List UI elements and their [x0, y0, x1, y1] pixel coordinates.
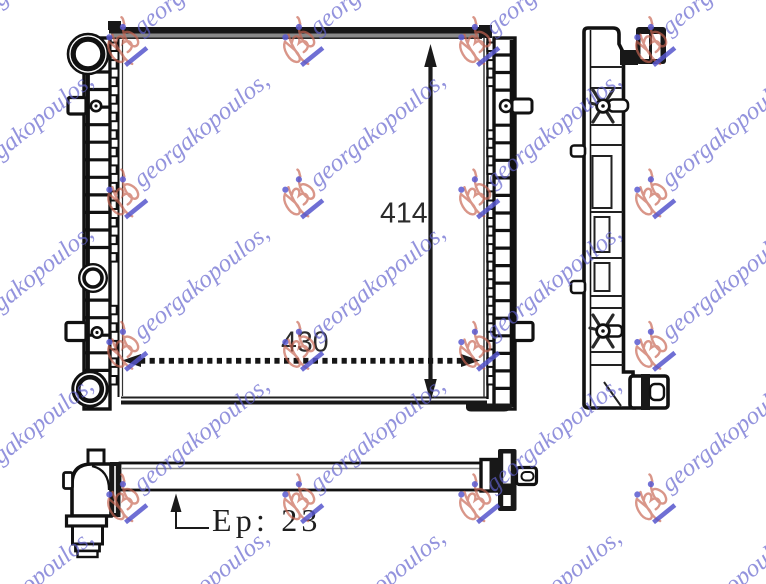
- svg-text:414: 414: [380, 198, 428, 230]
